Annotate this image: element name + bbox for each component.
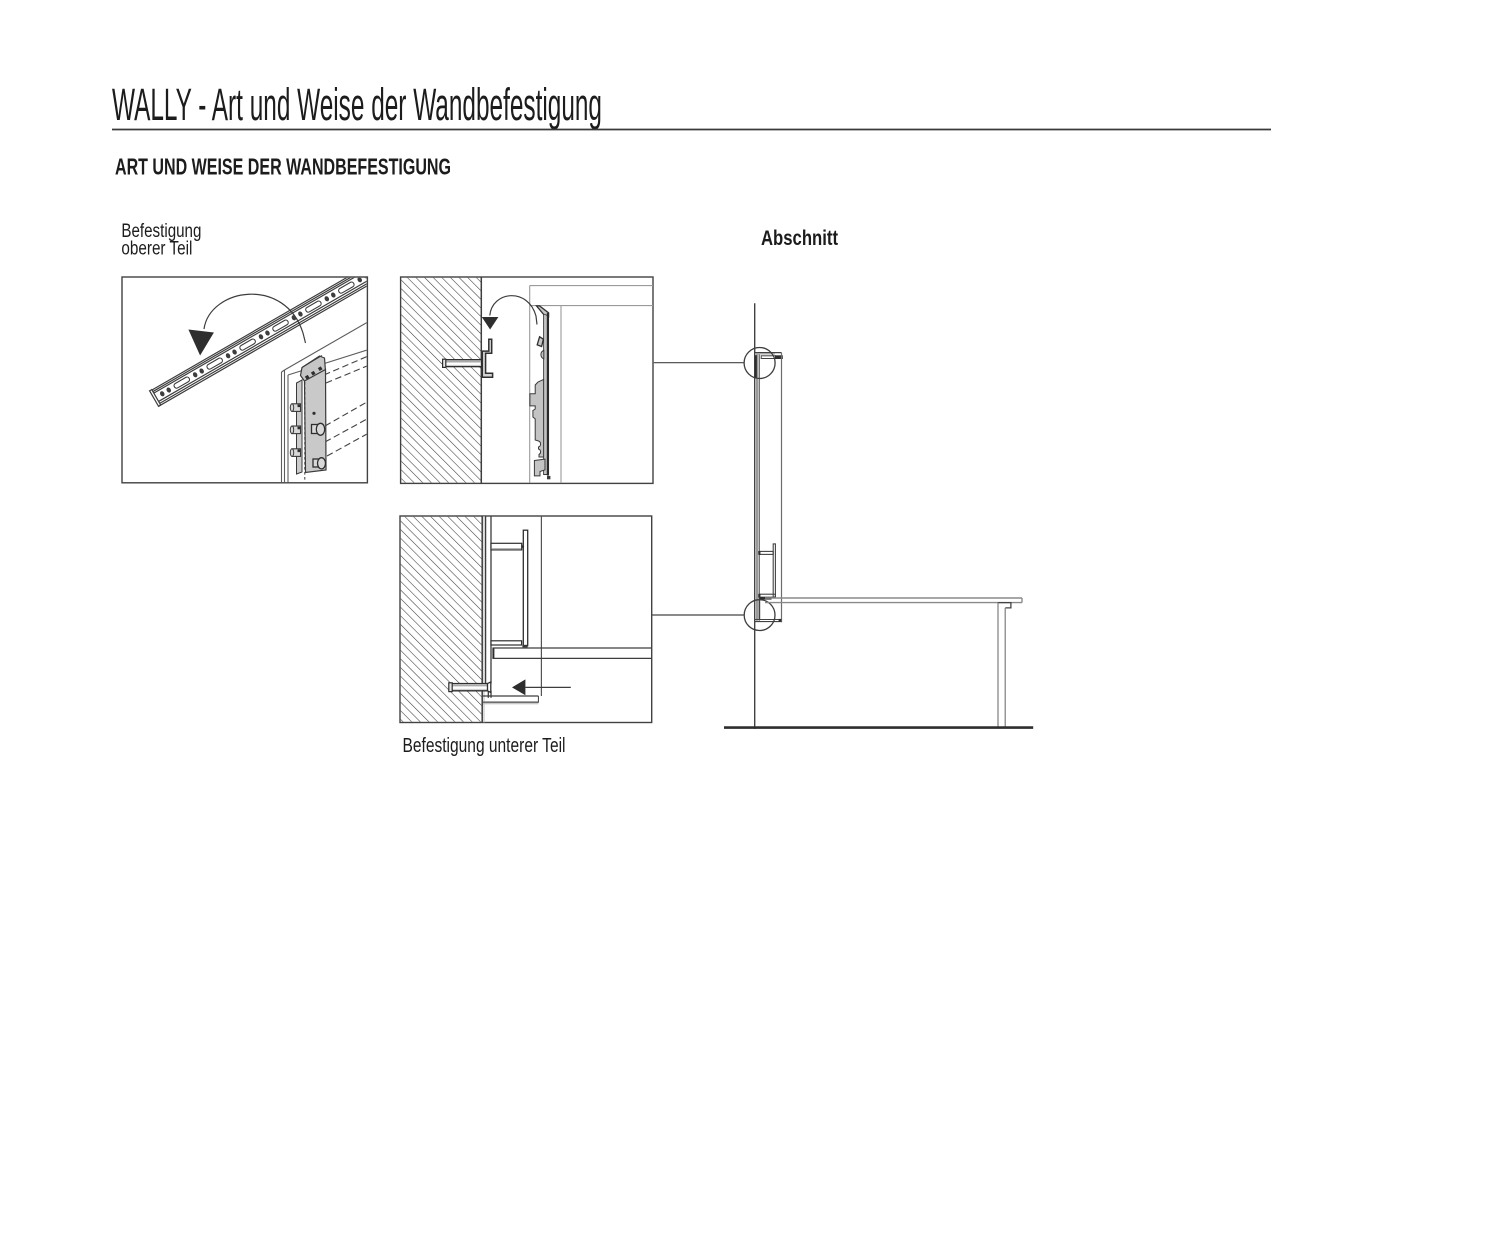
svg-text:ART UND WEISE DER WANDBEFESTIG: ART UND WEISE DER WANDBEFESTIGUNG <box>115 154 451 180</box>
svg-text:Befestigung unterer Teil: Befestigung unterer Teil <box>403 734 566 757</box>
svg-text:oberer Teil: oberer Teil <box>121 238 192 260</box>
svg-text:Abschnitt: Abschnitt <box>761 227 838 250</box>
svg-text:WALLY - Art und Weise der Wand: WALLY - Art und Weise der Wandbefestigun… <box>112 79 602 130</box>
